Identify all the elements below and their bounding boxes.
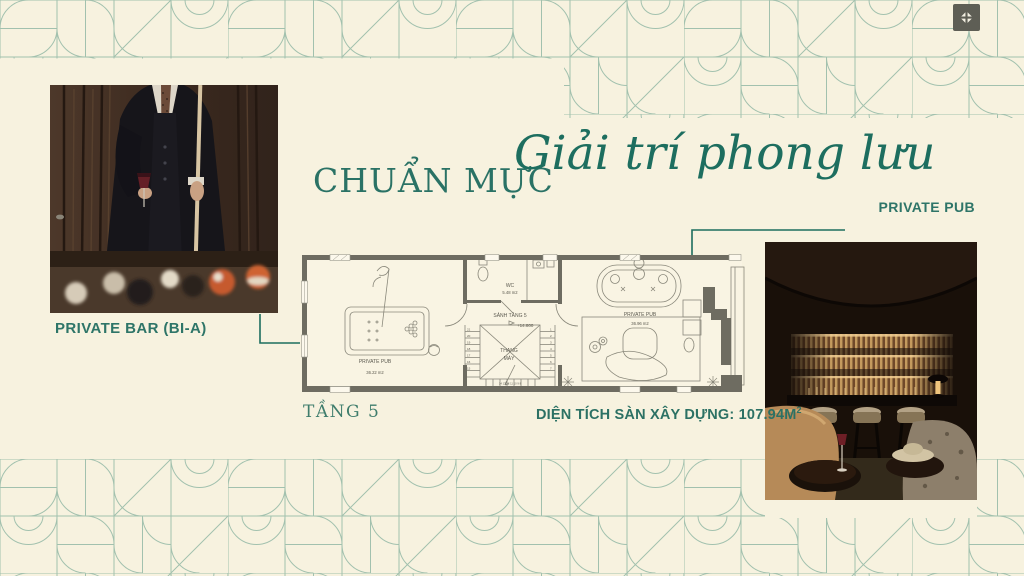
plan-lift-line2: MÁY bbox=[504, 355, 516, 362]
plan-room-left-name: PRIVATE PUB bbox=[359, 359, 392, 365]
svg-text:20: 20 bbox=[467, 334, 471, 338]
plan-room-left-area: 36.22 m2 bbox=[366, 370, 384, 375]
built-area-label: DIỆN TÍCH SÀN XÂY DỰNG: 107.94M2 bbox=[536, 405, 802, 423]
svg-text:18: 18 bbox=[467, 347, 471, 351]
floor-plan: PRIVATE PUB 36.22 m2 WC 5.48 m2 SẢNH TẦN… bbox=[297, 247, 747, 399]
plan-hall-name: SẢNH TẦNG 5 bbox=[493, 312, 526, 319]
floor-label: TẦNG 5 bbox=[303, 402, 380, 422]
svg-text:16: 16 bbox=[467, 360, 471, 364]
svg-text:15: 15 bbox=[467, 367, 471, 371]
photo-private-pub bbox=[765, 242, 977, 518]
svg-text:17: 17 bbox=[467, 354, 471, 358]
svg-text:19: 19 bbox=[467, 341, 471, 345]
private-bar-label: PRIVATE BAR (BI-A) bbox=[55, 320, 207, 337]
page-title-script: Giải trí phong lưu bbox=[514, 126, 935, 181]
built-area-text: DIỆN TÍCH SÀN XÂY DỰNG: 107.94M bbox=[536, 407, 797, 423]
plan-hall-level: +14.800 bbox=[517, 323, 534, 328]
plan-lift-line1: THANG bbox=[500, 348, 518, 354]
plan-room-right-area: 36.96 m2 bbox=[631, 321, 649, 326]
built-area-sup: 2 bbox=[797, 405, 802, 415]
svg-text:21: 21 bbox=[467, 328, 471, 332]
slide: { "meta": { "bg_color": "#f7f2df", "acce… bbox=[0, 0, 1024, 576]
compress-icon bbox=[958, 9, 975, 26]
plan-stairs-bottom-numbers: 14 13 12 11 10 9 8 bbox=[499, 382, 522, 386]
plan-wc-area: 5.48 m2 bbox=[502, 290, 518, 295]
plan-room-right-name: PRIVATE PUB bbox=[624, 312, 657, 318]
fullscreen-button[interactable] bbox=[953, 4, 980, 31]
photo-private-bar bbox=[50, 85, 278, 313]
private-pub-label: PRIVATE PUB bbox=[879, 199, 975, 215]
plan-wc-name: WC bbox=[506, 283, 515, 289]
